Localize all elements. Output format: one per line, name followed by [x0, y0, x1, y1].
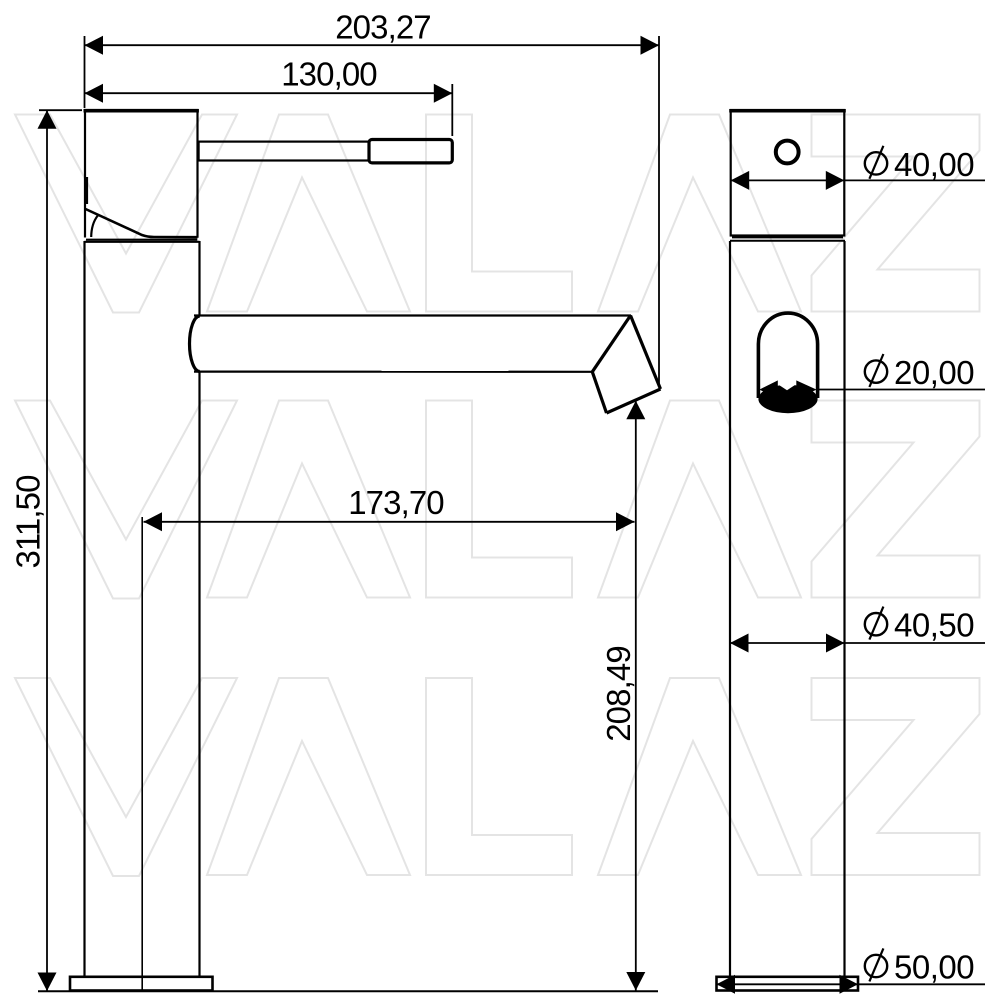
svg-text:208,49: 208,49: [600, 646, 637, 742]
svg-text:311,50: 311,50: [10, 475, 47, 569]
svg-text:20,00: 20,00: [894, 354, 974, 391]
svg-text:40,00: 40,00: [894, 146, 974, 183]
svg-text:173,70: 173,70: [348, 484, 444, 521]
svg-text:40,50: 40,50: [894, 607, 974, 644]
svg-text:130,00: 130,00: [281, 56, 377, 93]
svg-text:50,00: 50,00: [894, 948, 974, 985]
svg-text:203,27: 203,27: [335, 9, 431, 46]
